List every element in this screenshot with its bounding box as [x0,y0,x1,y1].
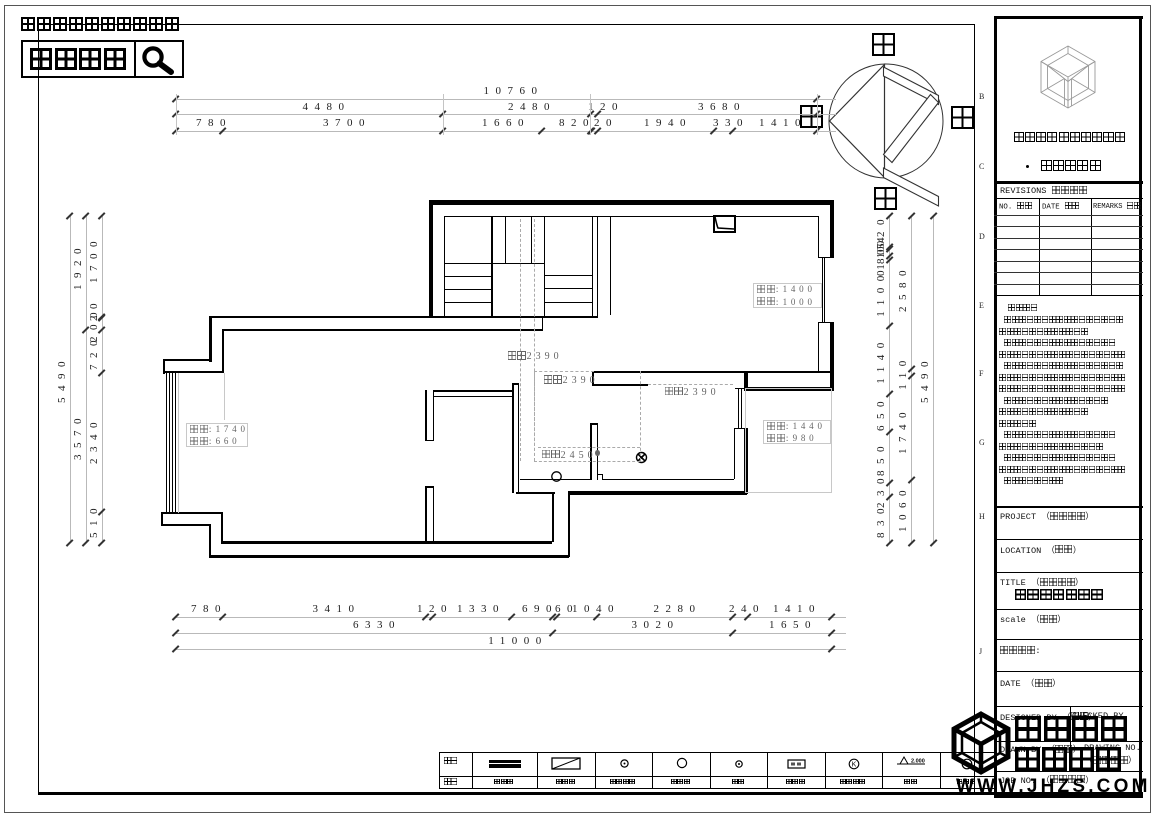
svg-text:2.000: 2.000 [911,759,925,765]
svg-text:K: K [852,761,857,768]
